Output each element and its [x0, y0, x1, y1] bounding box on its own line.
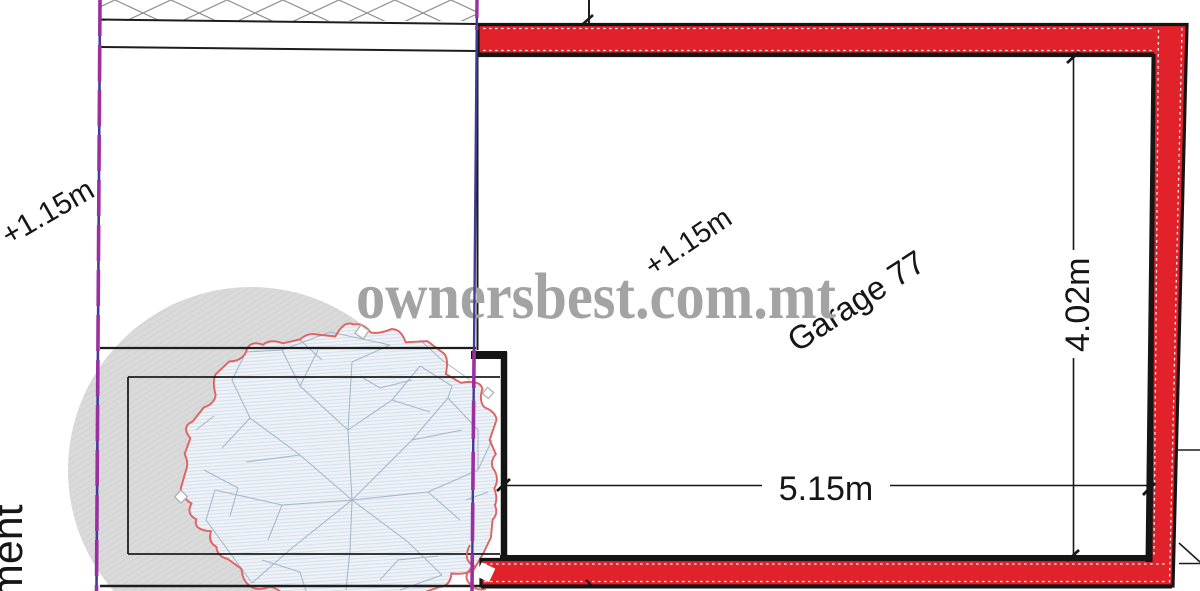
- svg-text:4.02m: 4.02m: [1059, 258, 1097, 353]
- svg-text:ownersbest.com.mt: ownersbest.com.mt: [356, 260, 836, 333]
- svg-text:5.15m: 5.15m: [779, 470, 874, 508]
- svg-text:ment: ment: [0, 504, 32, 591]
